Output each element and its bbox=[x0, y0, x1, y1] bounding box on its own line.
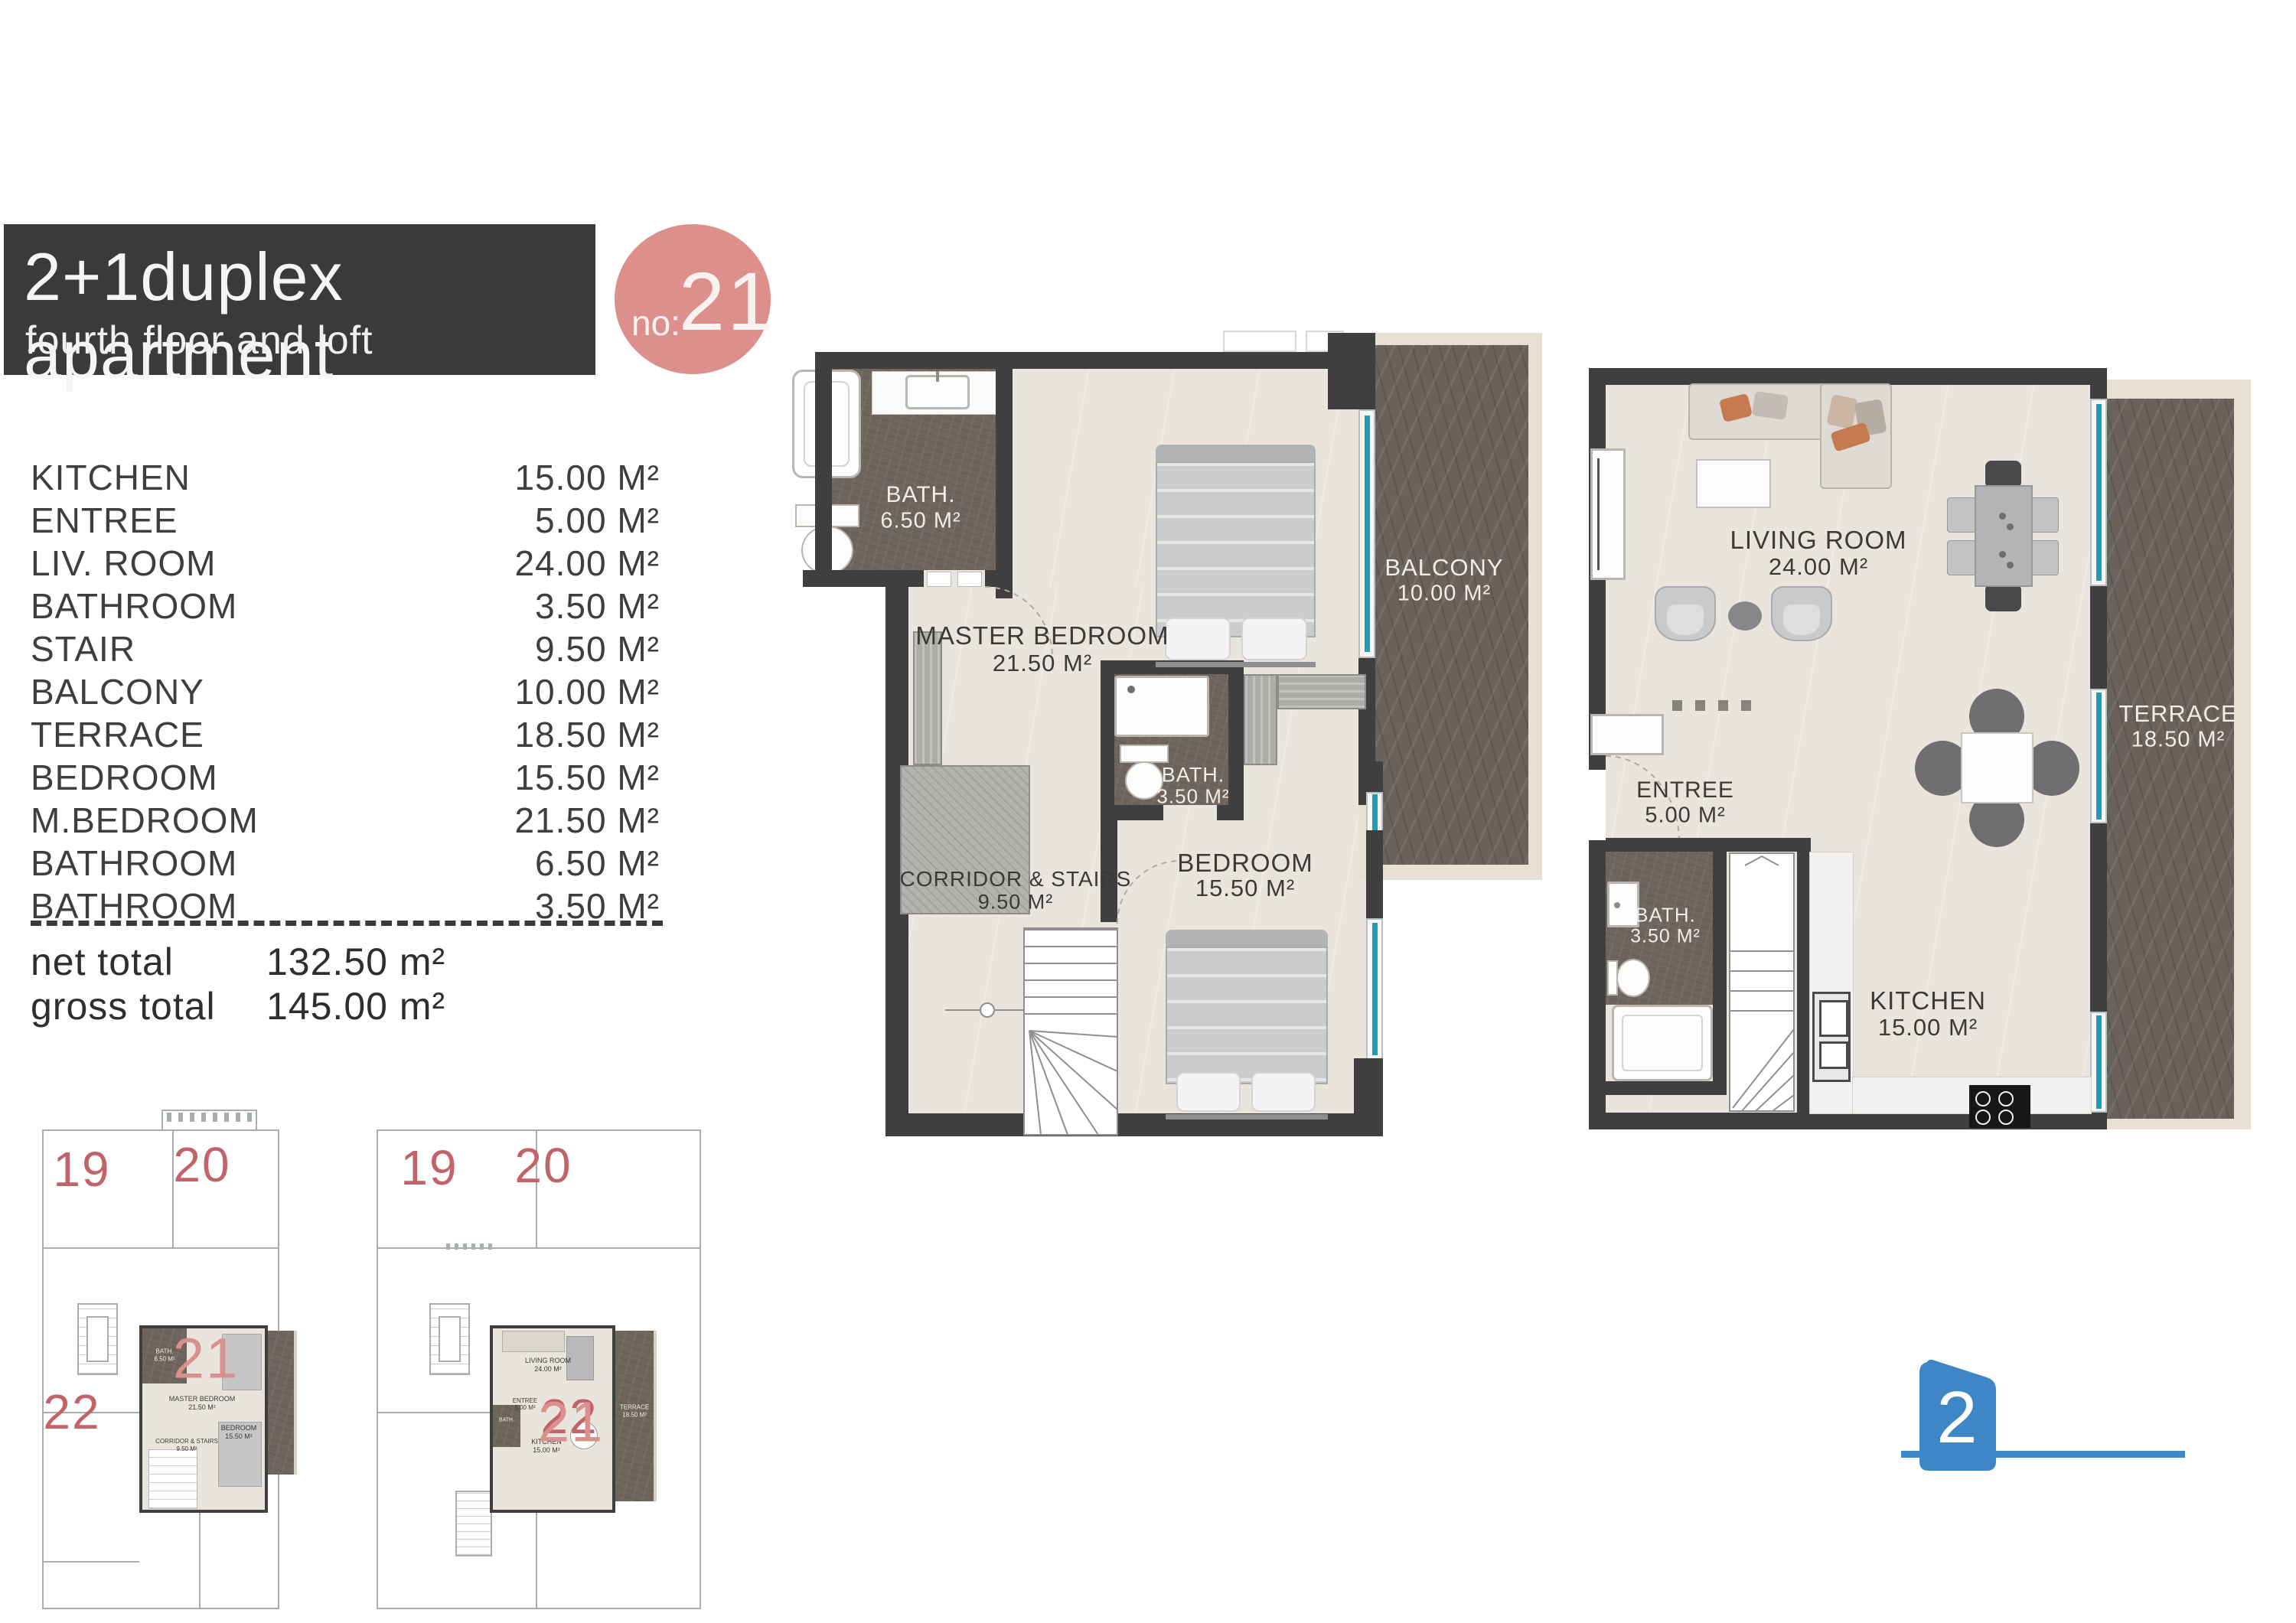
room-area-bath: 3.50 M² bbox=[1630, 926, 1701, 948]
wall bbox=[1606, 1081, 1727, 1095]
key-plan-stairs bbox=[455, 1491, 492, 1556]
room-label: BATHROOM bbox=[31, 585, 237, 627]
dining-chair bbox=[1947, 497, 1976, 533]
wall bbox=[1606, 838, 1811, 852]
cabinet bbox=[1590, 714, 1664, 755]
gross-total-label: gross total bbox=[31, 984, 266, 1028]
room-area-kitchen: 15.00 M² bbox=[1878, 1014, 1978, 1041]
area-row: M.BEDROOM21.50 M² bbox=[31, 799, 660, 842]
room-label: BEDROOM bbox=[31, 757, 218, 798]
mini-label: BEDROOM bbox=[221, 1424, 257, 1432]
room-area-bedroom: 15.50 M² bbox=[1195, 875, 1295, 902]
wardrobe bbox=[1244, 674, 1277, 765]
wall bbox=[1589, 368, 2107, 385]
wall bbox=[2090, 586, 2107, 689]
room-area: 18.50 M² bbox=[514, 714, 660, 755]
unit-19: 19 bbox=[400, 1139, 458, 1196]
net-total-value: 132.50 m² bbox=[266, 940, 445, 984]
key-plan-line bbox=[377, 1412, 490, 1413]
roof-vent bbox=[1223, 331, 1296, 352]
shower bbox=[1114, 676, 1209, 737]
wall bbox=[1328, 333, 1375, 409]
cooktop bbox=[1969, 1085, 2030, 1128]
room-label-corridor: CORRIDOR & STAIRS bbox=[900, 867, 1132, 891]
gross-total-value: 145.00 m² bbox=[266, 984, 445, 1028]
wall bbox=[996, 352, 1013, 598]
room-label-bath: BATH. bbox=[1635, 904, 1696, 927]
mini-label: TERRACE bbox=[620, 1404, 649, 1411]
wall bbox=[830, 352, 1358, 369]
totals-divider bbox=[31, 921, 663, 926]
side-table bbox=[1728, 601, 1762, 631]
mini-label: 9.50 M² bbox=[176, 1445, 197, 1453]
window-ticks bbox=[167, 1113, 253, 1122]
wall bbox=[1101, 660, 1114, 820]
armchair bbox=[1771, 586, 1832, 641]
dining-table bbox=[1975, 485, 2033, 587]
room-label: ENTREE bbox=[31, 500, 178, 541]
terrace-floor bbox=[2107, 399, 2234, 1119]
key-plan-stairs-core bbox=[439, 1316, 461, 1362]
title-box: 2+1duplex apartment fourth floor and lof… bbox=[4, 224, 595, 375]
coffee-table bbox=[1696, 459, 1771, 508]
unit-22: 22 bbox=[43, 1383, 100, 1440]
bathtub bbox=[1612, 1005, 1713, 1081]
door-sill bbox=[957, 572, 982, 587]
net-total-label: net total bbox=[31, 940, 266, 984]
door-sill bbox=[927, 572, 951, 587]
mini-label: LIVING ROOM bbox=[525, 1357, 571, 1364]
room-label-terrace: TERRACE bbox=[2118, 700, 2237, 728]
window bbox=[1366, 918, 1383, 1060]
totals: net total 132.50 m² gross total 145.00 m… bbox=[31, 940, 445, 1028]
kitchen-table bbox=[1961, 732, 2033, 803]
window bbox=[1358, 409, 1375, 658]
floor-plan-fourth: BATH. 6.50 M² MASTER BEDROOM 21.50 M² BA… bbox=[792, 333, 1542, 1136]
room-label-balcony: BALCONY bbox=[1384, 554, 1503, 582]
mini-label: BATH. bbox=[156, 1348, 174, 1355]
unit-19: 19 bbox=[53, 1141, 110, 1198]
mini-label: 5.00 M² bbox=[514, 1404, 535, 1412]
wall bbox=[2090, 823, 2107, 1012]
stairs bbox=[1727, 852, 1797, 1113]
mini-label: MASTER BEDROOM bbox=[169, 1395, 236, 1403]
dining-chair bbox=[1985, 584, 2021, 611]
toilet bbox=[1607, 957, 1652, 999]
room-area: 15.50 M² bbox=[514, 757, 660, 798]
wall bbox=[1713, 838, 1727, 1095]
room-area-bath-big: 6.50 M² bbox=[880, 509, 960, 534]
area-row: TERRACE18.50 M² bbox=[31, 713, 660, 756]
brochure-page: { "header": { "title": "2+1duplex apartm… bbox=[0, 0, 2296, 1623]
room-area-master: 21.50 M² bbox=[993, 650, 1092, 677]
unit-20: 20 bbox=[514, 1137, 572, 1194]
area-row: BATHROOM3.50 M² bbox=[31, 585, 660, 627]
unit-number: 21 bbox=[679, 253, 775, 349]
area-row: BEDROOM15.50 M² bbox=[31, 756, 660, 799]
key-plan-stairs-core bbox=[86, 1316, 109, 1362]
wardrobe bbox=[913, 631, 942, 765]
window bbox=[2090, 1012, 2107, 1113]
wall bbox=[2090, 368, 2107, 402]
room-area: 5.00 M² bbox=[535, 500, 660, 541]
key-plan-line bbox=[199, 1513, 201, 1609]
sofa-pillow bbox=[1752, 391, 1789, 420]
room-area: 6.50 M² bbox=[535, 842, 660, 884]
area-row: ENTREE5.00 M² bbox=[31, 499, 660, 542]
wall bbox=[985, 570, 1013, 587]
key-plan-line bbox=[536, 1513, 537, 1609]
room-label-kitchen: KITCHEN bbox=[1870, 986, 1986, 1015]
dining-chair bbox=[2030, 540, 2059, 575]
wall bbox=[803, 570, 924, 587]
room-label-bath-big: BATH. bbox=[885, 482, 955, 508]
radiator bbox=[1590, 448, 1626, 580]
room-label: BATHROOM bbox=[31, 842, 237, 884]
area-row: BATHROOM6.50 M² bbox=[31, 842, 660, 885]
room-area: 3.50 M² bbox=[535, 585, 660, 627]
room-area: 24.00 M² bbox=[514, 543, 660, 584]
room-area-balcony: 10.00 M² bbox=[1397, 582, 1491, 607]
window bbox=[2090, 399, 2107, 586]
kitchen-sink-unit bbox=[1812, 992, 1851, 1082]
mini-label: 6.50 M² bbox=[154, 1356, 174, 1363]
page-title: 2+1duplex apartment bbox=[24, 238, 595, 394]
unit-number-prefix: no: bbox=[631, 302, 680, 344]
room-area: 10.00 M² bbox=[514, 671, 660, 712]
wall bbox=[1797, 852, 1809, 1129]
room-area-entree: 5.00 M² bbox=[1645, 803, 1725, 829]
dining-chair bbox=[1985, 461, 2021, 488]
room-area-terrace: 18.50 M² bbox=[2131, 728, 2225, 753]
page-marker-badge: 2 bbox=[1916, 1353, 1998, 1474]
dotted-divider bbox=[1672, 700, 1764, 711]
sink bbox=[905, 375, 970, 409]
mini-label: CORRIDOR & STAIRS bbox=[155, 1438, 218, 1445]
room-label: M.BEDROOM bbox=[31, 800, 259, 841]
key-plan-line bbox=[42, 1247, 279, 1249]
wall bbox=[1228, 660, 1244, 820]
mini-sofa bbox=[502, 1331, 565, 1352]
master-bed bbox=[1156, 445, 1316, 667]
room-area: 9.50 M² bbox=[535, 628, 660, 670]
room-label-entree: ENTREE bbox=[1636, 777, 1734, 803]
unit-21-number: 21 bbox=[538, 1390, 604, 1455]
room-label-bedroom: BEDROOM bbox=[1177, 849, 1313, 878]
room-area: 15.00 M² bbox=[514, 457, 660, 498]
room-label: STAIR bbox=[31, 628, 135, 670]
room-area: 21.50 M² bbox=[514, 800, 660, 841]
room-label: LIV. ROOM bbox=[31, 543, 216, 584]
area-row: KITCHEN15.00 M² bbox=[31, 456, 660, 499]
unit-21-number: 21 bbox=[173, 1326, 239, 1391]
wall bbox=[1366, 830, 1383, 921]
room-area-bath-small: 3.50 M² bbox=[1156, 785, 1229, 809]
page-subtitle: fourth floor and loft bbox=[25, 318, 373, 363]
window-ticks bbox=[446, 1243, 492, 1250]
area-list: KITCHEN15.00 M² ENTREE5.00 M² LIV. ROOM2… bbox=[31, 456, 660, 927]
dining-chair bbox=[1947, 540, 1976, 575]
wall bbox=[815, 352, 832, 587]
unit-number-badge: no: 21 bbox=[615, 224, 771, 374]
mini-label: 18.50 M² bbox=[622, 1412, 647, 1419]
room-label-bath-small: BATH. bbox=[1162, 764, 1225, 787]
mini-label: 24.00 M² bbox=[534, 1365, 562, 1373]
page-marker-number: 2 bbox=[1916, 1376, 1998, 1460]
mini-label: 15.50 M² bbox=[225, 1432, 253, 1440]
gross-total-row: gross total 145.00 m² bbox=[31, 984, 445, 1028]
key-plan-line bbox=[377, 1247, 701, 1249]
mini-label: 21.50 M² bbox=[188, 1403, 216, 1411]
dining-chair bbox=[2030, 497, 2059, 533]
net-total-row: net total 132.50 m² bbox=[31, 940, 445, 984]
bedroom-bed bbox=[1166, 930, 1328, 1119]
mini-label: BATH. bbox=[499, 1417, 514, 1424]
mini-balcony bbox=[268, 1331, 297, 1475]
key-plan-line bbox=[42, 1561, 139, 1563]
room-label-living: LIVING ROOM bbox=[1730, 526, 1906, 555]
area-row: BALCONY10.00 M² bbox=[31, 670, 660, 713]
stairs bbox=[945, 922, 1129, 1140]
wall bbox=[1354, 1058, 1383, 1115]
mini-terrace: TERRACE 18.50 M² bbox=[615, 1331, 657, 1501]
floor-plan-loft: BATH. 3.50 M² bbox=[1589, 357, 2251, 1129]
room-area-corridor: 9.50 M² bbox=[978, 891, 1054, 914]
window bbox=[2090, 689, 2107, 823]
area-row: STAIR9.50 M² bbox=[31, 627, 660, 670]
area-row: LIV. ROOM24.00 M² bbox=[31, 542, 660, 585]
room-label: TERRACE bbox=[31, 714, 204, 755]
door-opening bbox=[1589, 770, 1606, 840]
armchair bbox=[1655, 586, 1716, 641]
room-label-master: MASTER BEDROOM bbox=[915, 621, 1169, 650]
room-label: BALCONY bbox=[31, 671, 204, 712]
key-plan-loft: LIVING ROOM 24.00 M² ENTREE 5.00 M² BATH… bbox=[360, 1071, 712, 1623]
wardrobe bbox=[1277, 674, 1366, 709]
room-label: KITCHEN bbox=[31, 457, 191, 498]
wall bbox=[1101, 805, 1163, 820]
key-plan-fourth: BATH. 6.50 M² MASTER BEDROOM 21.50 M² CO… bbox=[23, 1071, 352, 1623]
room-area-living: 24.00 M² bbox=[1769, 553, 1868, 581]
unit-20: 20 bbox=[173, 1136, 230, 1193]
mini-stairs bbox=[148, 1449, 197, 1509]
